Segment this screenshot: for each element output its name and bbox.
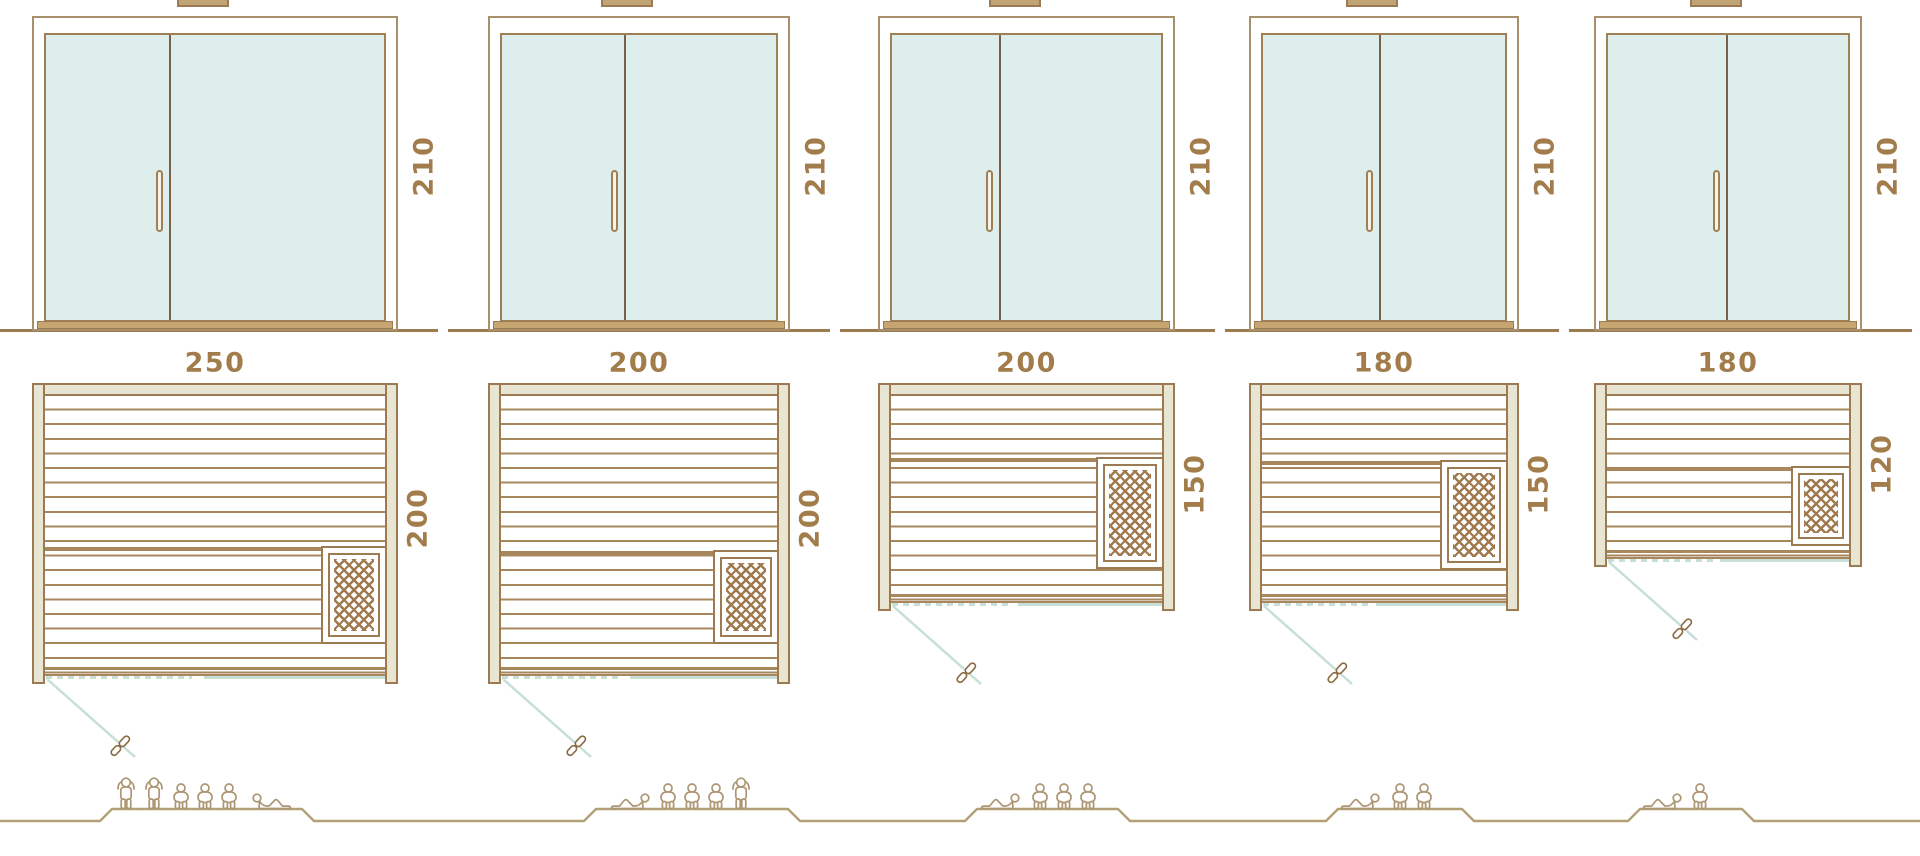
plan-depth-dimension: 120 xyxy=(1867,434,1898,495)
bench-front-line xyxy=(891,594,1162,597)
door-sill xyxy=(37,321,393,329)
plan-top-wall xyxy=(32,383,398,396)
plan-top-wall xyxy=(1249,383,1519,396)
door-swing xyxy=(503,679,591,757)
plan-top-wall xyxy=(488,383,790,396)
door-handle xyxy=(1366,170,1373,232)
door-swing xyxy=(47,679,135,757)
plan-door-handle-icon xyxy=(956,662,977,684)
person-sitting-icon xyxy=(1417,784,1431,809)
door-glass-panel xyxy=(1606,33,1850,322)
door-handle xyxy=(611,170,618,232)
glass-front-solid xyxy=(204,676,385,679)
door-sill xyxy=(1599,321,1857,329)
door-height-dimension: 210 xyxy=(409,136,440,197)
sauna-dimensions-diagram: 2102502002102002002102001502101801502101… xyxy=(0,0,1920,856)
person-sitting-icon xyxy=(198,784,212,809)
bench-front-line xyxy=(501,667,777,670)
heater-lattice xyxy=(334,559,374,631)
person-sitting-icon xyxy=(1393,784,1407,809)
heater-lattice xyxy=(1109,470,1151,556)
person-standing-icon xyxy=(118,778,134,808)
person-lying-icon xyxy=(982,794,1019,808)
person-sitting-icon xyxy=(222,784,236,809)
bench-front-line xyxy=(1262,594,1506,597)
roof-vent xyxy=(1346,0,1398,7)
person-standing-icon xyxy=(733,778,749,808)
door-swing xyxy=(1264,606,1352,684)
roof-vent xyxy=(177,0,229,7)
door-glass-panel xyxy=(1261,33,1507,322)
plan-door-handle-icon xyxy=(1327,662,1348,684)
door-sill xyxy=(493,321,785,329)
door-sill xyxy=(883,321,1170,329)
person-sitting-icon xyxy=(1081,784,1095,809)
plan-left-wall xyxy=(1594,383,1607,567)
plan-top-wall xyxy=(1594,383,1862,396)
plan-width-dimension: 180 xyxy=(1698,348,1759,379)
capacity-figures xyxy=(1342,784,1432,809)
glass-front-solid xyxy=(1376,603,1506,606)
plan-left-wall xyxy=(878,383,891,611)
person-sitting-icon xyxy=(709,784,723,809)
glass-front-dashed xyxy=(892,603,1011,606)
door-height-dimension: 210 xyxy=(1186,136,1217,197)
person-lying-icon xyxy=(1644,794,1681,808)
glass-front-solid xyxy=(630,676,777,679)
person-sitting-icon xyxy=(1693,784,1707,809)
roof-vent xyxy=(989,0,1041,7)
capacity-figures xyxy=(118,778,291,808)
door-height-dimension: 210 xyxy=(801,136,832,197)
plan-door-handle-icon xyxy=(110,735,131,757)
person-lying-icon xyxy=(1342,794,1379,808)
plan-width-dimension: 250 xyxy=(185,348,246,379)
door-divider xyxy=(999,35,1001,320)
plan-width-dimension: 180 xyxy=(1354,348,1415,379)
plan-width-dimension: 200 xyxy=(609,348,670,379)
door-glass-panel xyxy=(890,33,1163,322)
heater-lattice xyxy=(1453,473,1495,557)
door-height-dimension: 210 xyxy=(1530,136,1561,197)
roof-vent xyxy=(601,0,653,7)
capacity-figures xyxy=(982,784,1096,809)
glass-front-solid xyxy=(1720,559,1849,562)
door-divider xyxy=(169,35,171,320)
door-height-dimension: 210 xyxy=(1873,136,1904,197)
person-lying-icon xyxy=(253,794,290,808)
plan-depth-dimension: 150 xyxy=(1180,454,1211,515)
plan-door-handle-icon xyxy=(1672,618,1693,640)
plan-left-wall xyxy=(32,383,45,684)
plan-left-wall xyxy=(488,383,501,684)
door-divider xyxy=(1379,35,1381,320)
bench-front-line xyxy=(45,667,385,670)
door-glass-panel xyxy=(44,33,386,322)
person-sitting-icon xyxy=(174,784,188,809)
plan-door-handle-icon xyxy=(566,735,587,757)
bench-front-line xyxy=(1607,550,1849,553)
heater-lattice xyxy=(1804,479,1838,533)
plan-top-wall xyxy=(878,383,1175,396)
plan-depth-dimension: 200 xyxy=(795,487,826,548)
door-divider xyxy=(624,35,626,320)
person-sitting-icon xyxy=(661,784,675,809)
door-handle xyxy=(986,170,993,232)
glass-front-dashed xyxy=(502,676,623,679)
door-swing xyxy=(893,606,981,684)
glass-front-solid xyxy=(1018,603,1162,606)
heater-lattice xyxy=(726,563,766,631)
person-sitting-icon xyxy=(1033,784,1047,809)
door-handle xyxy=(1713,170,1720,232)
glass-front-dashed xyxy=(1263,603,1371,606)
plan-width-dimension: 200 xyxy=(996,348,1057,379)
plan-depth-dimension: 150 xyxy=(1524,454,1555,515)
door-glass-panel xyxy=(500,33,778,322)
capacity-figures xyxy=(1644,784,1708,809)
door-divider xyxy=(1726,35,1728,320)
door-handle xyxy=(156,170,163,232)
person-sitting-icon xyxy=(685,784,699,809)
roof-vent xyxy=(1690,0,1742,7)
door-swing xyxy=(1609,562,1697,640)
plan-depth-dimension: 200 xyxy=(403,487,434,548)
capacity-baseline xyxy=(0,809,1920,821)
glass-front-dashed xyxy=(46,676,192,679)
person-sitting-icon xyxy=(1057,784,1071,809)
person-lying-icon xyxy=(612,794,649,808)
glass-front-dashed xyxy=(1608,559,1715,562)
capacity-figures xyxy=(612,778,750,808)
plan-left-wall xyxy=(1249,383,1262,611)
door-sill xyxy=(1254,321,1514,329)
person-standing-icon xyxy=(146,778,162,808)
